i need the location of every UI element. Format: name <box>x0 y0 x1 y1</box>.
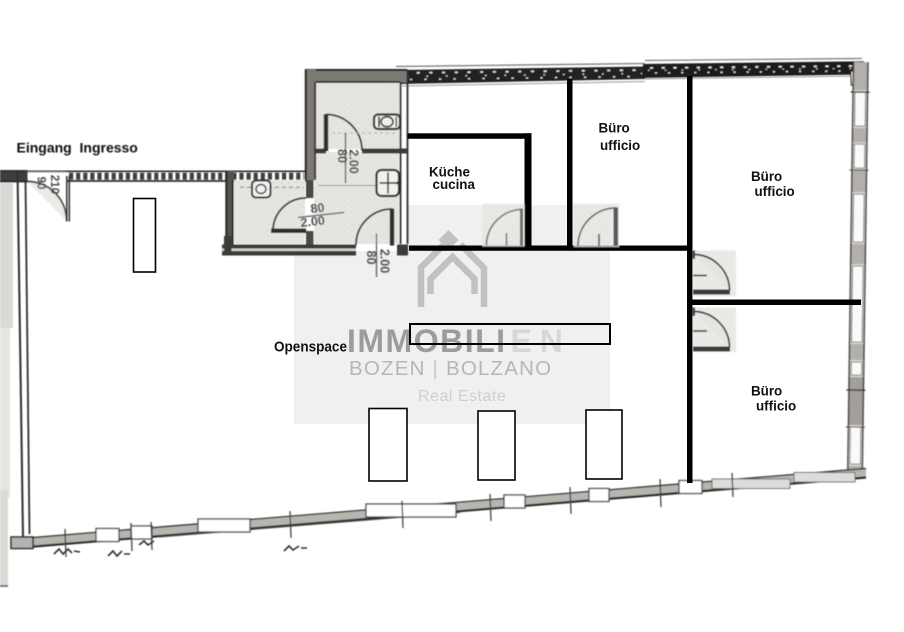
svg-text:2.00: 2.00 <box>347 149 361 173</box>
svg-text:ufficio: ufficio <box>756 399 796 414</box>
svg-text:ufficio: ufficio <box>755 184 795 199</box>
svg-text:Openspace: Openspace <box>274 340 347 356</box>
svg-text:Büro: Büro <box>751 169 782 184</box>
svg-text:BOZEN | BOLZANO: BOZEN | BOLZANO <box>349 357 552 380</box>
svg-text:210: 210 <box>48 175 60 194</box>
svg-text:Ingresso: Ingresso <box>80 140 138 156</box>
svg-text:2.00: 2.00 <box>378 249 392 273</box>
svg-text:cucina: cucina <box>433 177 476 192</box>
svg-text:ufficio: ufficio <box>600 138 640 153</box>
svg-text:Real Estate: Real Estate <box>418 388 506 405</box>
svg-text:Eingang: Eingang <box>17 140 72 156</box>
svg-text:Büro: Büro <box>599 121 630 136</box>
svg-text:IMMOBILIEN: IMMOBILIEN <box>347 323 571 359</box>
svg-text:Büro: Büro <box>751 384 782 399</box>
svg-text:90: 90 <box>35 177 47 190</box>
